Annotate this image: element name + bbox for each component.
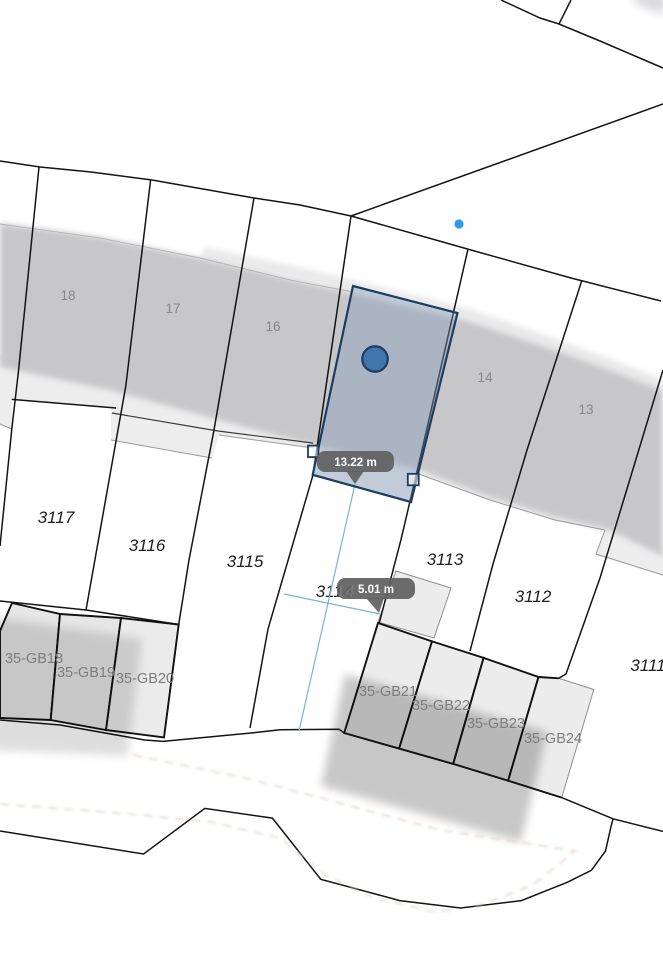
svg-text:35-GB18: 35-GB18 bbox=[5, 651, 63, 667]
svg-text:18: 18 bbox=[60, 288, 75, 303]
svg-text:13: 13 bbox=[578, 402, 593, 417]
svg-text:3112: 3112 bbox=[515, 587, 552, 606]
svg-text:3116: 3116 bbox=[129, 536, 166, 555]
svg-text:35-GB22: 35-GB22 bbox=[412, 698, 470, 714]
svg-text:3115: 3115 bbox=[227, 552, 264, 571]
svg-text:35-GB24: 35-GB24 bbox=[524, 731, 582, 747]
svg-text:35-GB21: 35-GB21 bbox=[359, 684, 417, 700]
svg-text:5.01 m: 5.01 m bbox=[358, 583, 394, 596]
svg-text:13.22 m: 13.22 m bbox=[334, 456, 377, 469]
svg-text:35-GB20: 35-GB20 bbox=[116, 671, 174, 687]
svg-text:35-GB23: 35-GB23 bbox=[467, 716, 525, 732]
svg-text:14: 14 bbox=[336, 582, 355, 601]
svg-text:3117: 3117 bbox=[38, 508, 75, 527]
svg-text:17: 17 bbox=[165, 301, 180, 316]
svg-text:14: 14 bbox=[477, 370, 493, 385]
svg-text:16: 16 bbox=[265, 319, 280, 334]
svg-text:35-GB19: 35-GB19 bbox=[57, 665, 115, 681]
svg-text:3113: 3113 bbox=[427, 550, 464, 569]
svg-text:3111: 3111 bbox=[630, 656, 663, 675]
